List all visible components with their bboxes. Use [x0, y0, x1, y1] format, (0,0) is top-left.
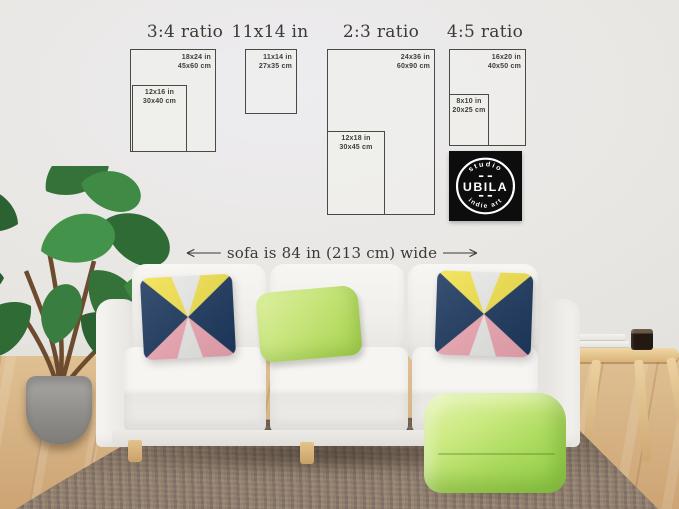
side-table-top	[572, 348, 679, 362]
size-box-label: 11x14 in 27x35 cm	[259, 53, 292, 71]
size-box-label: 12x18 in 30x45 cm	[328, 134, 384, 152]
left-arrow-icon	[184, 246, 221, 260]
right-arrow-icon	[443, 246, 480, 260]
size-box-12x16: 12x16 in 30x40 cm	[132, 85, 187, 152]
sofa-leg	[128, 440, 142, 462]
size-box-12x18: 12x18 in 30x45 cm	[327, 131, 385, 215]
size-box-18x24: 18x24 in 45x60 cm 12x16 in 30x40 cm	[130, 49, 216, 152]
logo-name-text: UBILA	[463, 180, 508, 194]
geometric-pillow-left	[140, 274, 236, 361]
plant-pot	[26, 376, 92, 444]
size-section-title: 4:5 ratio	[442, 22, 528, 42]
geometric-pillow-right	[435, 270, 534, 357]
sofa-width-text: sofa is 84 in (213 cm) wide	[227, 244, 437, 262]
size-box-label: 16x20 in 40x50 cm	[488, 53, 521, 71]
green-pillow	[255, 285, 363, 364]
size-box-label: 24x36 in 60x90 cm	[397, 53, 430, 71]
size-box-11x14: 11x14 in 27x35 cm	[245, 49, 297, 114]
book	[579, 334, 625, 340]
candle-jar	[631, 329, 653, 350]
books-stack	[579, 334, 629, 348]
green-pouf	[424, 393, 566, 493]
sofa-width-annotation: sofa is 84 in (213 cm) wide	[184, 242, 480, 264]
size-section-title: 2:3 ratio	[328, 22, 434, 42]
size-section-title: 11x14 in	[227, 22, 313, 42]
sofa-leg	[300, 442, 314, 464]
size-box-label: 8x10 in 20x25 cm	[450, 97, 488, 115]
size-box-16x20: 16x20 in 40x50 cm 8x10 in 20x25 cm	[449, 49, 526, 146]
book	[579, 341, 629, 347]
size-box-label: 12x16 in 30x40 cm	[133, 88, 186, 106]
size-box-8x10: 8x10 in 20x25 cm	[449, 94, 489, 146]
ubila-studio-logo: studio UBILA indie art	[449, 151, 522, 221]
size-section-title: 3:4 ratio	[130, 22, 240, 42]
size-box-24x36: 24x36 in 60x90 cm 12x18 in 30x45 cm	[327, 49, 435, 215]
size-box-label: 18x24 in 45x60 cm	[178, 53, 211, 71]
living-room-size-guide-scene: 3:4 ratio 18x24 in 45x60 cm 12x16 in 30x…	[0, 0, 679, 509]
